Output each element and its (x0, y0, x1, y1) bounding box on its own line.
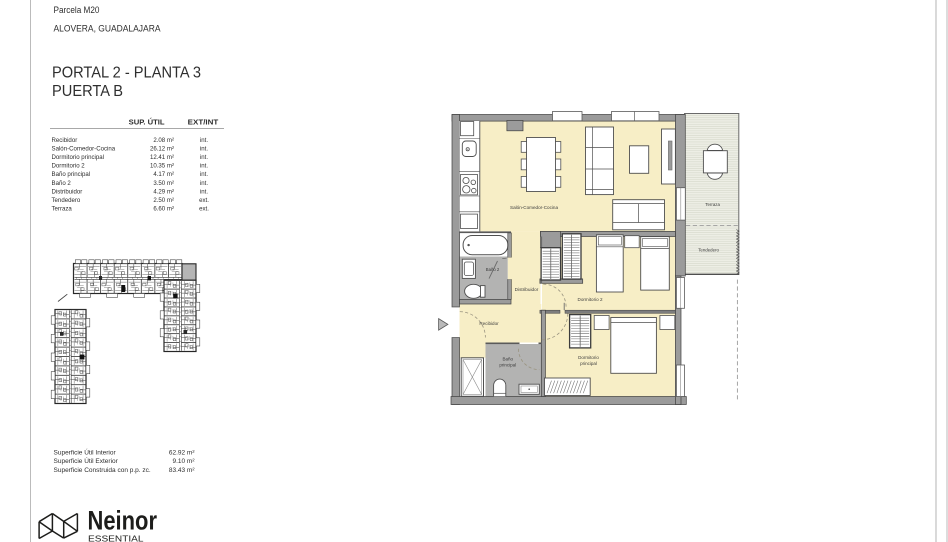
svg-text:62.92 m²: 62.92 m² (169, 450, 195, 457)
svg-text:Baño: Baño (503, 357, 514, 362)
svg-text:int.: int. (200, 171, 208, 178)
svg-text:SUP. ÚTIL: SUP. ÚTIL (129, 117, 165, 126)
svg-text:Distribuidor: Distribuidor (52, 188, 83, 195)
svg-text:principal: principal (580, 361, 597, 366)
svg-text:Superficie Construida con p.p.: Superficie Construida con p.p. zc. (54, 467, 151, 474)
svg-text:ALOVERA, GUADALAJARA: ALOVERA, GUADALAJARA (54, 22, 162, 33)
svg-text:int.: int. (200, 154, 208, 161)
svg-text:int.: int. (200, 163, 208, 170)
svg-text:Terraza: Terraza (705, 202, 720, 207)
svg-text:principal: principal (499, 362, 516, 367)
svg-text:Dormitorio: Dormitorio (578, 355, 599, 360)
svg-text:EXT/INT: EXT/INT (188, 117, 219, 126)
svg-text:PORTAL 2 - PLANTA 3: PORTAL 2 - PLANTA 3 (52, 65, 201, 82)
svg-text:Tendedero: Tendedero (52, 197, 81, 204)
svg-text:83.43 m²: 83.43 m² (169, 467, 195, 474)
svg-text:Neinor: Neinor (88, 506, 158, 536)
svg-text:Dormitorio 2: Dormitorio 2 (52, 163, 86, 170)
svg-text:Recibidor: Recibidor (52, 137, 78, 144)
svg-text:ESSENTIAL: ESSENTIAL (88, 534, 144, 542)
svg-text:Terraza: Terraza (52, 205, 73, 212)
svg-text:Baño 2: Baño 2 (486, 267, 500, 272)
svg-text:4.17 m²: 4.17 m² (153, 171, 174, 178)
svg-text:Baño 2: Baño 2 (52, 180, 72, 187)
svg-text:Salón-Comedor-Cocina: Salón-Comedor-Cocina (52, 146, 116, 153)
svg-text:Baño principal: Baño principal (52, 171, 91, 178)
svg-text:10.35 m²: 10.35 m² (150, 163, 174, 170)
svg-text:4.29 m²: 4.29 m² (153, 188, 174, 195)
svg-text:ext.: ext. (199, 197, 209, 204)
svg-text:12.41 m²: 12.41 m² (150, 154, 174, 161)
svg-text:Superficie Útil Interior: Superficie Útil Interior (54, 448, 117, 457)
svg-text:int.: int. (200, 146, 208, 153)
svg-text:26.12 m²: 26.12 m² (150, 146, 174, 153)
svg-text:Salón-Comedor-Cocina: Salón-Comedor-Cocina (510, 205, 558, 211)
svg-text:9.10 m²: 9.10 m² (172, 458, 195, 465)
svg-text:PUERTA B: PUERTA B (52, 83, 123, 100)
svg-text:Parcela M20: Parcela M20 (54, 5, 100, 15)
svg-text:ext.: ext. (199, 205, 209, 212)
svg-text:Superficie Útil Exterior: Superficie Útil Exterior (54, 456, 119, 465)
svg-text:Tendedero: Tendedero (698, 248, 719, 253)
svg-text:int.: int. (200, 188, 208, 195)
svg-text:Dormitorio 2: Dormitorio 2 (578, 297, 603, 302)
svg-text:2.08 m²: 2.08 m² (153, 137, 174, 144)
svg-text:Distribuidor: Distribuidor (515, 287, 539, 292)
svg-text:Recibidor: Recibidor (479, 321, 499, 326)
svg-text:int.: int. (200, 180, 208, 187)
svg-text:6.60 m²: 6.60 m² (153, 205, 174, 212)
svg-text:2.50 m²: 2.50 m² (153, 197, 174, 204)
svg-text:int.: int. (200, 137, 208, 144)
svg-text:3.50 m²: 3.50 m² (153, 180, 174, 187)
svg-text:Dormitorio principal: Dormitorio principal (52, 154, 105, 161)
